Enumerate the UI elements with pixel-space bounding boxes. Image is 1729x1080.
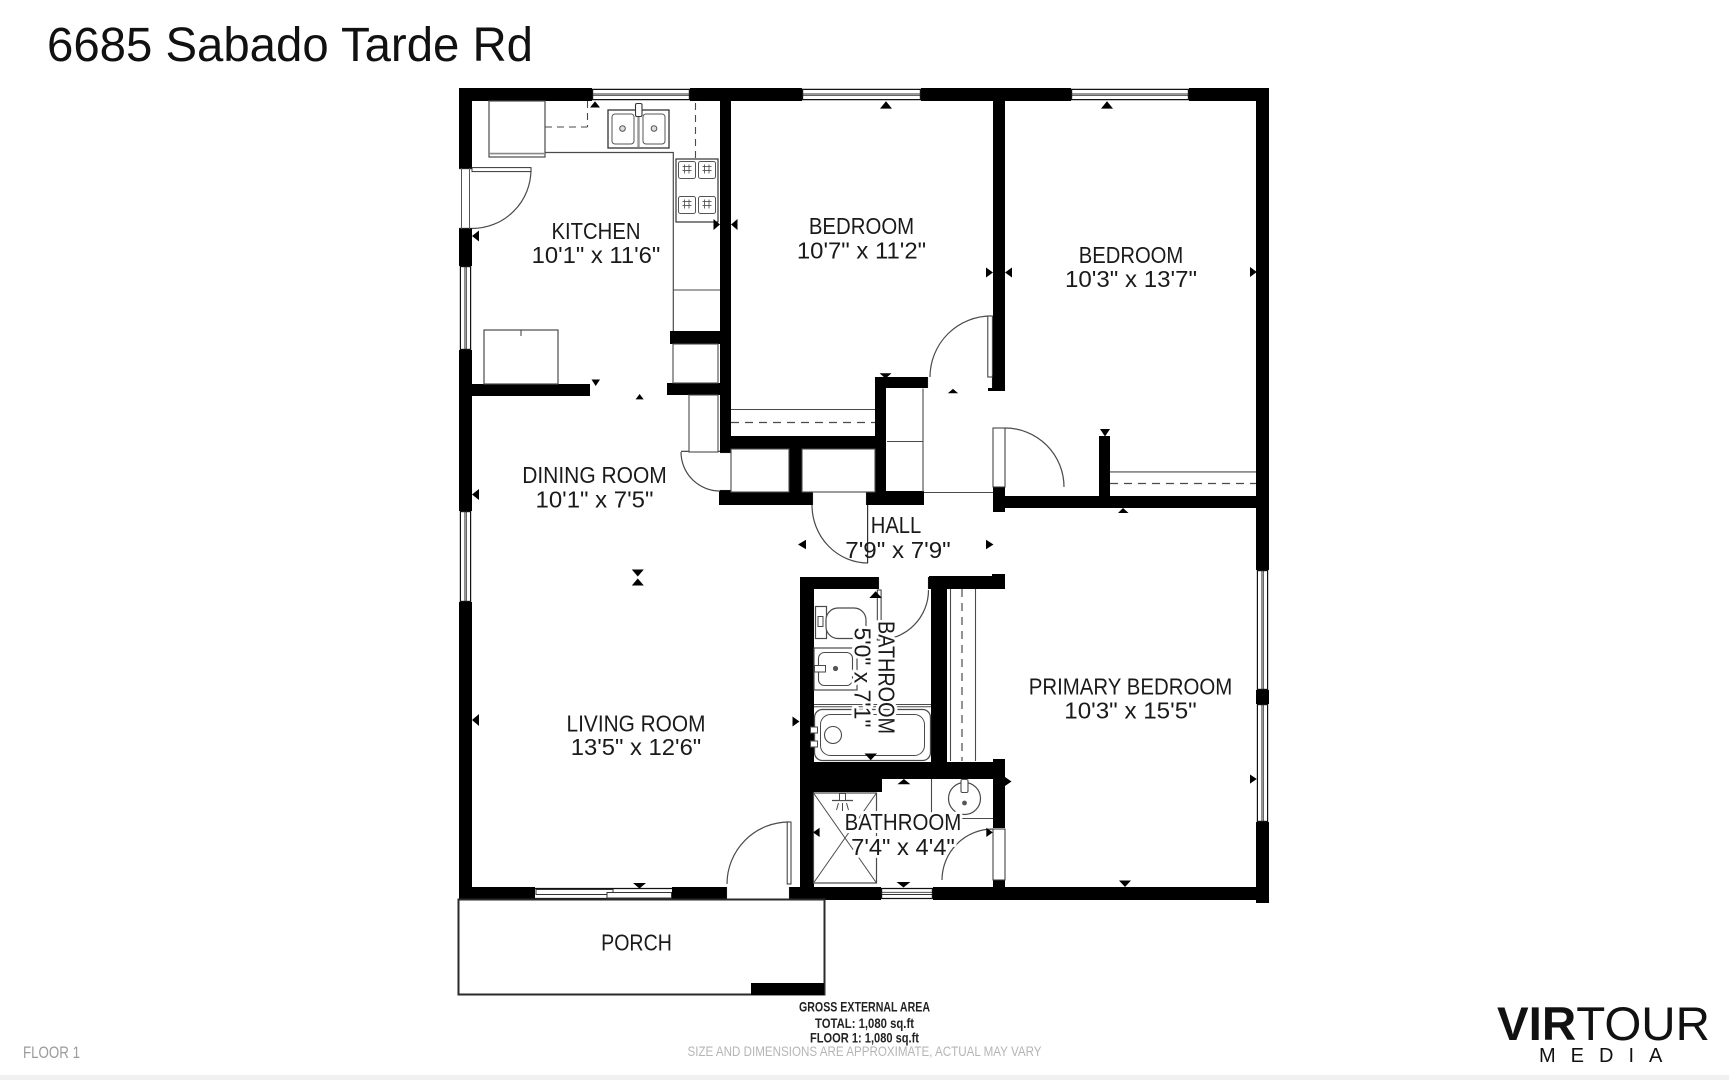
svg-text:5'0" x 7'1": 5'0" x 7'1" [850,628,876,728]
svg-text:BATHROOM: BATHROOM [874,621,900,734]
svg-text:13'5" x 12'6": 13'5" x 12'6" [571,734,702,760]
svg-text:7'4" x 4'4": 7'4" x 4'4" [851,834,955,860]
svg-text:LIVING ROOM: LIVING ROOM [567,711,706,737]
svg-text:7'9" x 7'9": 7'9" x 7'9" [845,537,950,563]
svg-text:FLOOR 1: FLOOR 1 [23,1043,80,1062]
svg-text:DINING ROOM: DINING ROOM [522,462,667,488]
svg-text:PRIMARY BEDROOM: PRIMARY BEDROOM [1029,674,1233,700]
svg-text:MEDIA: MEDIA [1539,1045,1677,1067]
svg-text:GROSS EXTERNAL AREA: GROSS EXTERNAL AREA [799,999,930,1015]
svg-text:PORCH: PORCH [601,930,672,956]
svg-text:VIRTOUR: VIRTOUR [1497,998,1710,1051]
svg-text:10'1" x 11'6": 10'1" x 11'6" [532,242,661,268]
svg-text:BEDROOM: BEDROOM [1079,242,1184,268]
svg-text:HALL: HALL [871,512,922,538]
svg-text:10'7" x 11'2": 10'7" x 11'2" [797,238,926,264]
svg-text:BATHROOM: BATHROOM [845,809,962,835]
svg-text:10'3" x 15'5": 10'3" x 15'5" [1064,698,1196,724]
svg-text:BEDROOM: BEDROOM [809,213,914,239]
svg-text:10'1" x 7'5": 10'1" x 7'5" [536,487,654,513]
svg-text:SIZE AND DIMENSIONS ARE APPROX: SIZE AND DIMENSIONS ARE APPROXIMATE, ACT… [688,1043,1043,1059]
svg-text:10'3" x 13'7": 10'3" x 13'7" [1065,266,1197,292]
svg-text:6685 Sabado Tarde Rd: 6685 Sabado Tarde Rd [47,19,533,72]
svg-text:KITCHEN: KITCHEN [552,218,641,244]
